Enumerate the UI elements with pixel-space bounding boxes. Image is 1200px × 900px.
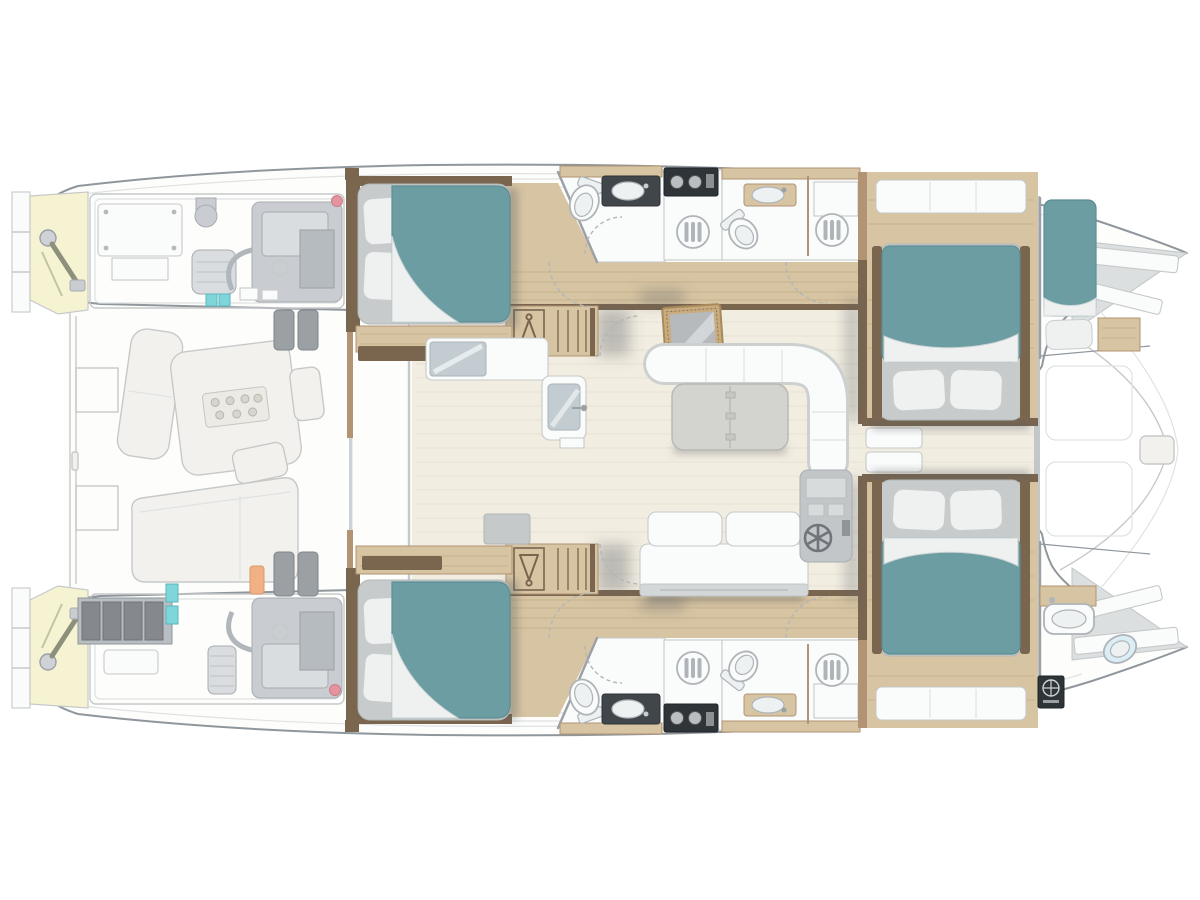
sliding-door (349, 438, 352, 530)
swim-platform-starboard (12, 588, 30, 708)
bow-seat (1140, 436, 1174, 464)
catamaran-floor-plan-page: Catamaran motor yacht deck plan: four gu… (0, 0, 1200, 900)
seacock-marker (330, 685, 341, 696)
swim-platform-port (12, 192, 30, 312)
helm-station (800, 470, 852, 562)
folding-table (672, 384, 788, 454)
steering-compartment-port (30, 192, 88, 314)
boat-plan-figure: Catamaran motor yacht deck plan: four gu… (0, 0, 1200, 900)
battery-bank (78, 598, 172, 644)
aft-cabin-starboard (346, 546, 518, 724)
hatch-badge (1038, 676, 1064, 708)
aft-cabin-port (346, 176, 518, 361)
seacock-marker (332, 196, 343, 207)
